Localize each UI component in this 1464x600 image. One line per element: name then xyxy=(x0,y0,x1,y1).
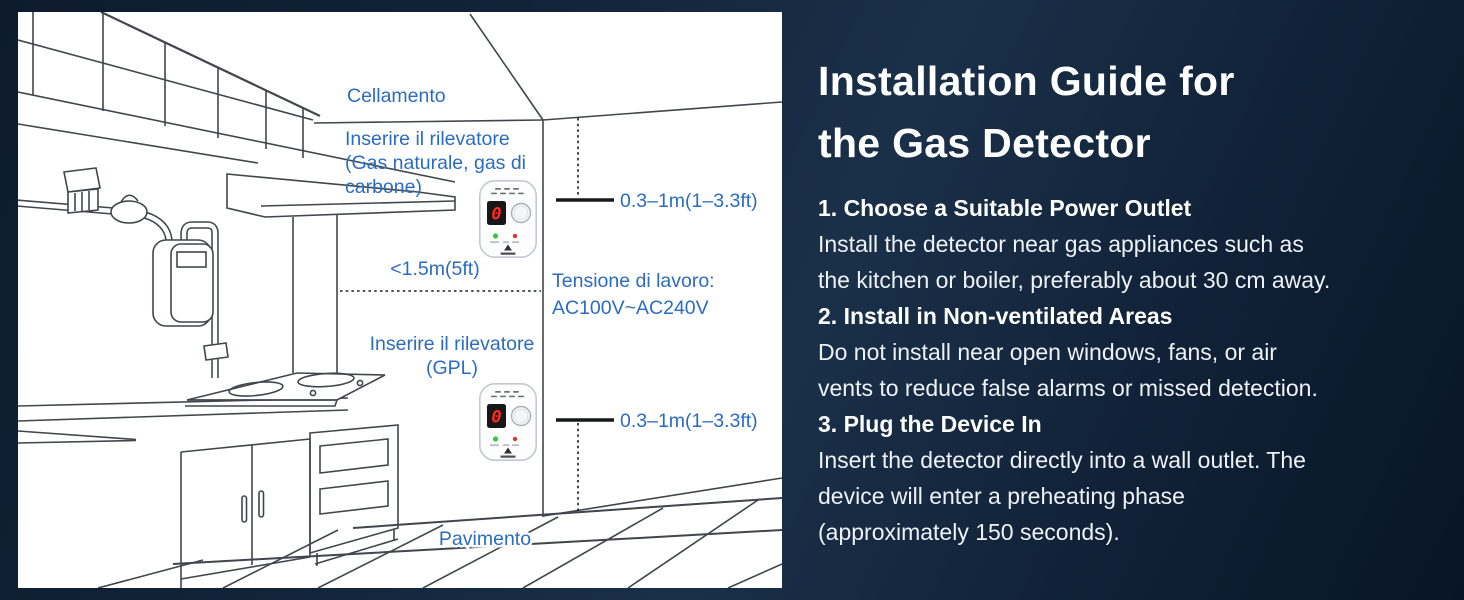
label-voltage-line2: AC100V~AC240V xyxy=(552,297,709,319)
kitchen-diagram: 0 xyxy=(18,12,782,588)
step-3-body-line1: Insert the detector directly into a wall… xyxy=(818,442,1458,478)
step-3-heading: 3. Plug the Device In xyxy=(818,406,1458,442)
drawer-unit xyxy=(310,425,398,566)
gas-detector-bottom xyxy=(480,384,536,460)
label-detector1-line3: carbone) xyxy=(345,176,422,198)
step-2: 2. Install in Non-ventilated Areas Do no… xyxy=(818,298,1458,406)
step-3-body-line2: device will enter a preheating phase xyxy=(818,478,1458,514)
label-range-bottom: 0.3–1m(1–3.3ft) xyxy=(620,410,758,432)
label-voltage-line1: Tensione di lavoro: xyxy=(552,270,715,292)
cabinet-doors xyxy=(181,439,310,588)
label-detector2-line1: Inserire il rilevatore xyxy=(370,333,535,355)
gas-pipe-and-meter xyxy=(18,168,228,378)
label-floor: Pavimento xyxy=(439,528,531,550)
label-range-top: 0.3–1m(1–3.3ft) xyxy=(620,190,758,212)
step-1: 1. Choose a Suitable Power Outlet Instal… xyxy=(818,190,1458,298)
step-1-heading: 1. Choose a Suitable Power Outlet xyxy=(818,190,1458,226)
step-3-body-line3: (approximately 150 seconds). xyxy=(818,514,1458,550)
page-title: Installation Guide for the Gas Detector xyxy=(818,50,1458,174)
diagram-labels: Cellamento Inserire il rilevatore (Gas n… xyxy=(345,85,758,550)
diagram-panel: 0 xyxy=(18,12,782,588)
gas-detector-top xyxy=(480,181,536,257)
step-2-body-line2: vents to reduce false alarms or missed d… xyxy=(818,370,1458,406)
label-detector1-line1: Inserire il rilevatore xyxy=(345,128,510,150)
title-line1: Installation Guide for xyxy=(818,50,1458,112)
step-1-body-line2: the kitchen or boiler, preferably about … xyxy=(818,262,1458,298)
shutoff-valve xyxy=(204,343,228,360)
guide-text-block: Installation Guide for the Gas Detector … xyxy=(818,50,1458,550)
installation-guide-banner: 0 xyxy=(0,0,1464,600)
gas-valve-handle xyxy=(64,168,100,192)
step-1-body-line1: Install the detector near gas appliances… xyxy=(818,226,1458,262)
title-line2: the Gas Detector xyxy=(818,112,1458,174)
steps-list: 1. Choose a Suitable Power Outlet Instal… xyxy=(818,190,1458,550)
counter-and-floor xyxy=(18,372,782,588)
step-2-heading: 2. Install in Non-ventilated Areas xyxy=(818,298,1458,334)
step-2-body-line1: Do not install near open windows, fans, … xyxy=(818,334,1458,370)
step-3: 3. Plug the Device In Insert the detecto… xyxy=(818,406,1458,550)
label-detector2-line2: (GPL) xyxy=(426,357,478,379)
label-distance: <1.5m(5ft) xyxy=(390,258,479,280)
label-detector1-line2: (Gas naturale, gas di xyxy=(345,152,526,174)
label-ceiling: Cellamento xyxy=(347,85,446,107)
